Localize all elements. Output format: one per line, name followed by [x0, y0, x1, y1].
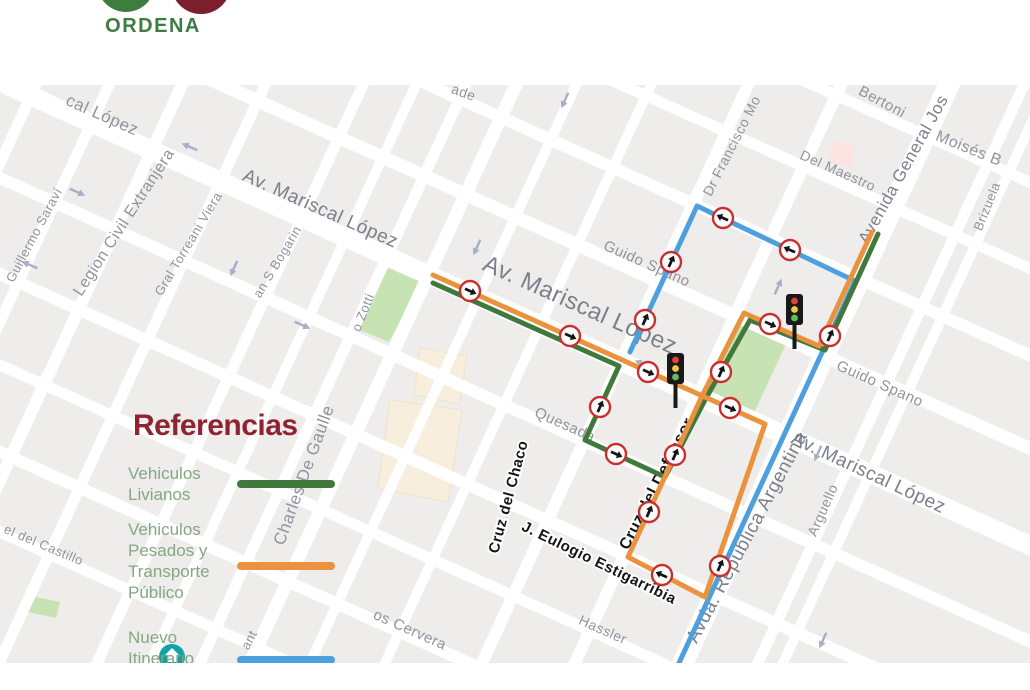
one-way-sign-icon [760, 314, 780, 334]
one-way-sign-icon [460, 281, 480, 301]
legend-swatch-vehiculos-pesados [237, 562, 335, 570]
brand-wordmark: ORDENA [93, 15, 213, 38]
legend-label-vehiculos-livianos: Vehiculos Livianos [128, 463, 201, 505]
legend-label-vehiculos-pesados: Vehiculos Pesados y Transporte Público [128, 519, 210, 603]
one-way-sign-icon [590, 397, 610, 417]
one-way-sign-icon [606, 444, 626, 464]
one-way-sign-icon [661, 252, 681, 272]
logo-circle-red [171, 0, 231, 14]
one-way-sign-icon [713, 208, 733, 228]
one-way-sign-icon [639, 502, 659, 522]
legend-swatch-linea-31 [237, 656, 335, 663]
one-way-sign-icon [560, 326, 580, 346]
one-way-sign-icon [665, 445, 685, 465]
one-way-sign-icon [710, 556, 730, 576]
logo-circle-green [97, 0, 155, 12]
one-way-sign-icon [780, 240, 800, 260]
legend-label-linea-31: Nuevo Itinerario Linea 31 [128, 627, 194, 663]
one-way-sign-icon [635, 310, 655, 330]
one-way-sign-icon [820, 326, 840, 346]
header: ORDENA [0, 0, 1030, 85]
legend-swatch-vehiculos-livianos [237, 480, 335, 488]
legend-title: Referencias [133, 409, 298, 443]
one-way-sign-icon [720, 398, 740, 418]
page: ORDENA cal LópezGuillermo SaravíLegion C… [0, 0, 1030, 690]
one-way-sign-icon [711, 362, 731, 382]
detour-map: cal LópezGuillermo SaravíLegion Civil Ex… [0, 85, 1030, 663]
one-way-sign-icon [638, 362, 658, 382]
one-way-sign-icon [652, 565, 672, 585]
